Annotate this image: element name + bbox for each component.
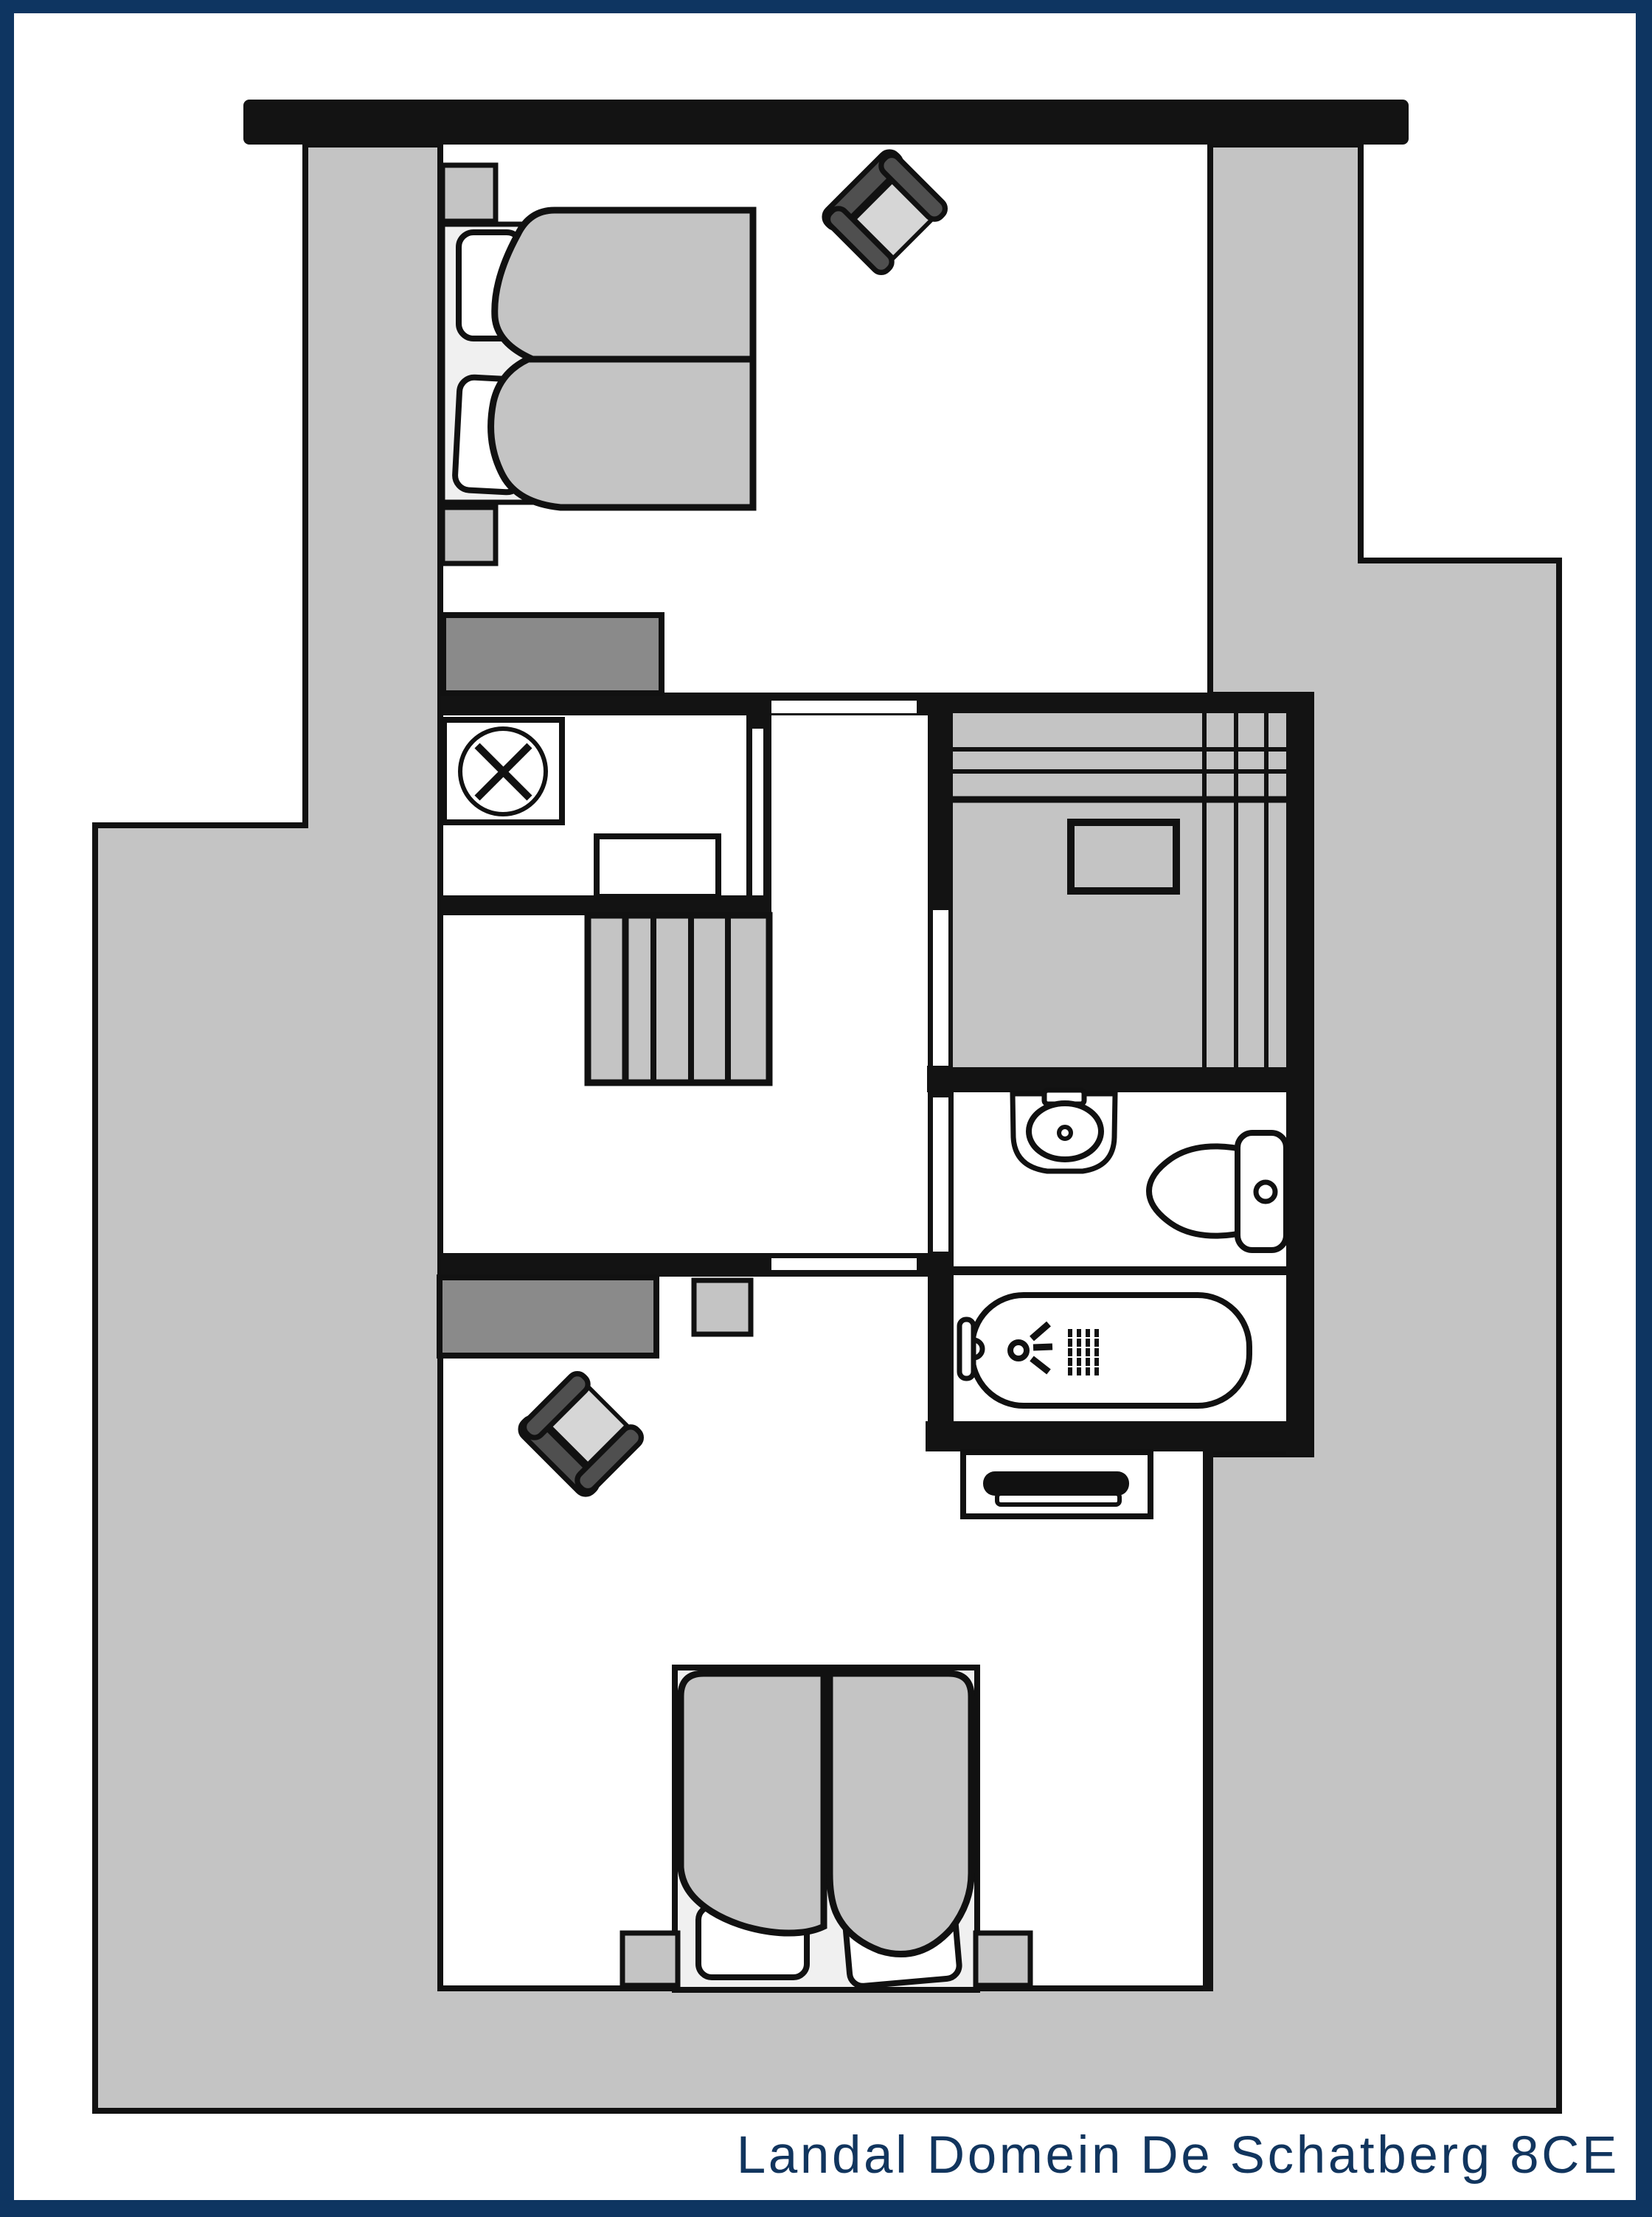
svg-text:Landal Domein De Schatberg 8CE: Landal Domein De Schatberg 8CE <box>737 2126 1620 2185</box>
